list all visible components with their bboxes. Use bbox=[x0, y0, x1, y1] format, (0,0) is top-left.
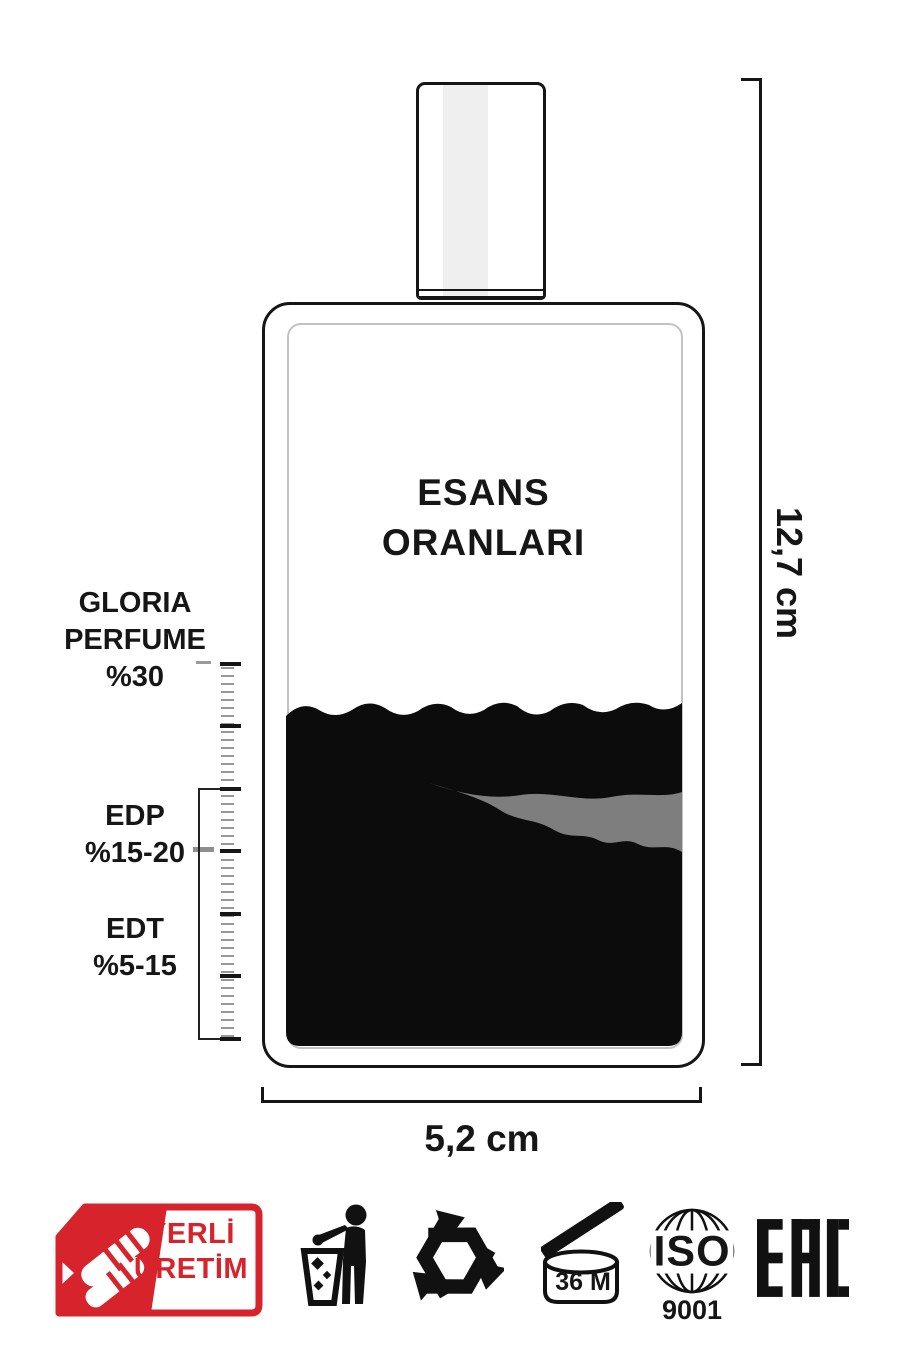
label-text: %30 bbox=[35, 659, 235, 696]
badge-line-1: YERLİ bbox=[125, 1217, 257, 1252]
label-text: GLORIA bbox=[35, 585, 235, 622]
height-dimension-line bbox=[741, 78, 762, 1066]
width-dimension-line bbox=[261, 1087, 702, 1103]
liquid-fill bbox=[286, 690, 682, 1047]
label-edp: EDP %15-20 bbox=[35, 798, 235, 872]
pao-duration-label: 36 M bbox=[547, 1268, 619, 1297]
iso-title: ISO bbox=[650, 1231, 733, 1274]
cap-collar-line bbox=[419, 296, 543, 298]
iso-number: 9001 bbox=[648, 1295, 736, 1326]
label-text: EDP bbox=[35, 798, 235, 835]
height-dimension-value: 12,7 cm bbox=[768, 507, 810, 639]
tidyman-disposal-icon bbox=[299, 1204, 387, 1308]
bottle-title: ESANS ORANLARI bbox=[262, 468, 705, 568]
cap-collar-line bbox=[419, 289, 543, 291]
label-text: PERFUME bbox=[35, 622, 235, 659]
title-line-2: ORANLARI bbox=[262, 518, 705, 568]
width-dimension-value: 5,2 cm bbox=[262, 1118, 702, 1160]
ruler-major-tick bbox=[220, 787, 241, 791]
label-text: EDT bbox=[35, 911, 235, 948]
badge-text: YERLİ ÜRETİM bbox=[125, 1217, 257, 1287]
bottle-cap bbox=[416, 82, 546, 300]
badge-line-2: ÜRETİM bbox=[125, 1252, 257, 1287]
label-text: %15-20 bbox=[35, 835, 235, 872]
cap-highlight bbox=[443, 85, 488, 297]
label-text: %5-15 bbox=[35, 948, 235, 985]
perfume-infographic: ESANS ORANLARI GLORIA PERFUME %30 EDP %1… bbox=[0, 0, 900, 1350]
eac-mark bbox=[757, 1216, 849, 1300]
ruler-major-tick bbox=[220, 1037, 241, 1041]
label-gloria-perfume: GLORIA PERFUME %30 bbox=[35, 585, 235, 696]
yerli-uretim-badge: YERLİ ÜRETİM bbox=[55, 1203, 263, 1317]
title-line-1: ESANS bbox=[262, 468, 705, 518]
iso-9001-mark: ISO 9001 bbox=[648, 1207, 736, 1337]
label-edt: EDT %5-15 bbox=[35, 911, 235, 985]
recycling-icon bbox=[405, 1206, 504, 1305]
ruler-major-tick bbox=[220, 724, 241, 728]
